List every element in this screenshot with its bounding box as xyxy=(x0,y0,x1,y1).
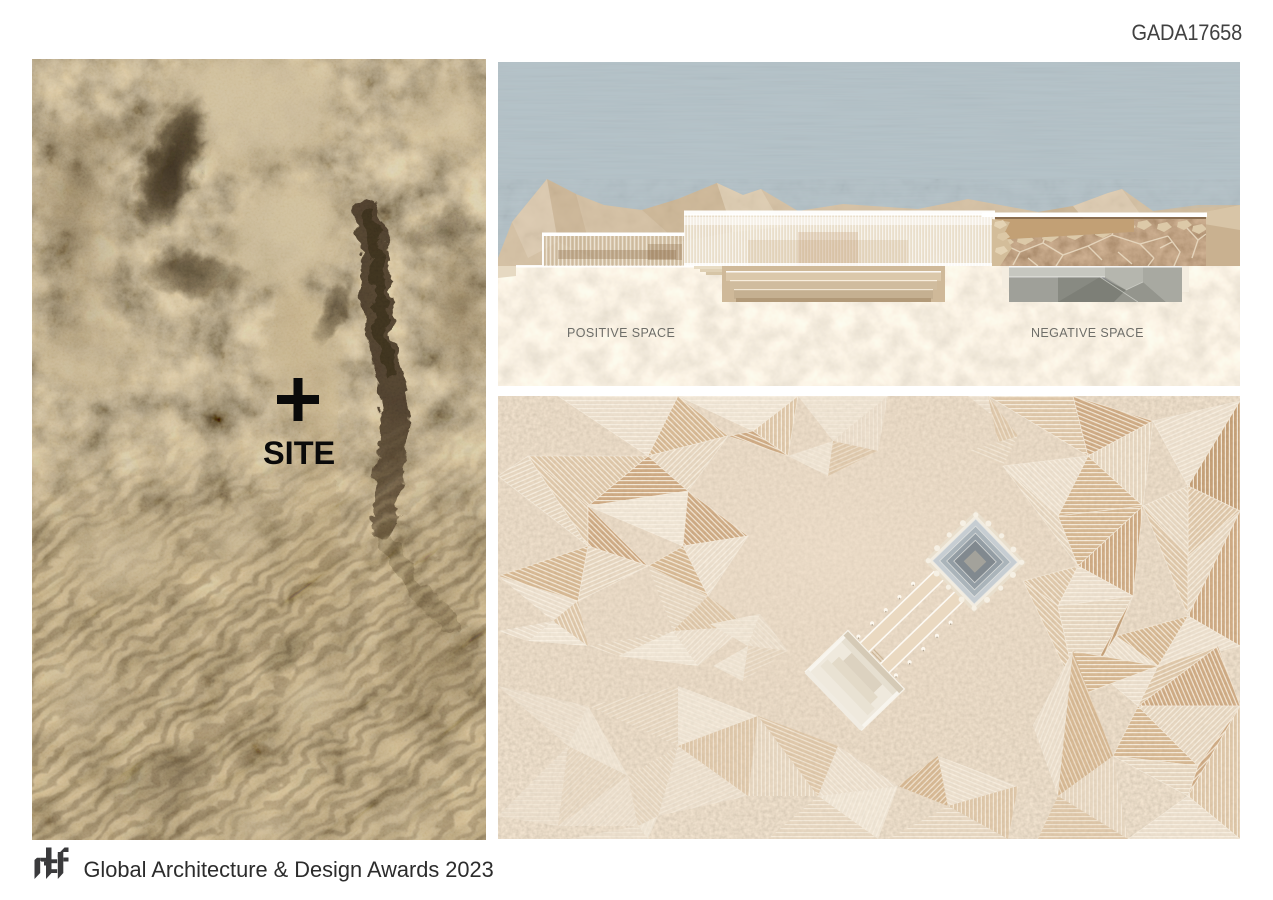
svg-text:SITE: SITE xyxy=(263,435,335,471)
svg-text:NEGATIVE SPACE: NEGATIVE SPACE xyxy=(1031,326,1144,340)
svg-text:POSITIVE SPACE: POSITIVE SPACE xyxy=(567,326,675,340)
